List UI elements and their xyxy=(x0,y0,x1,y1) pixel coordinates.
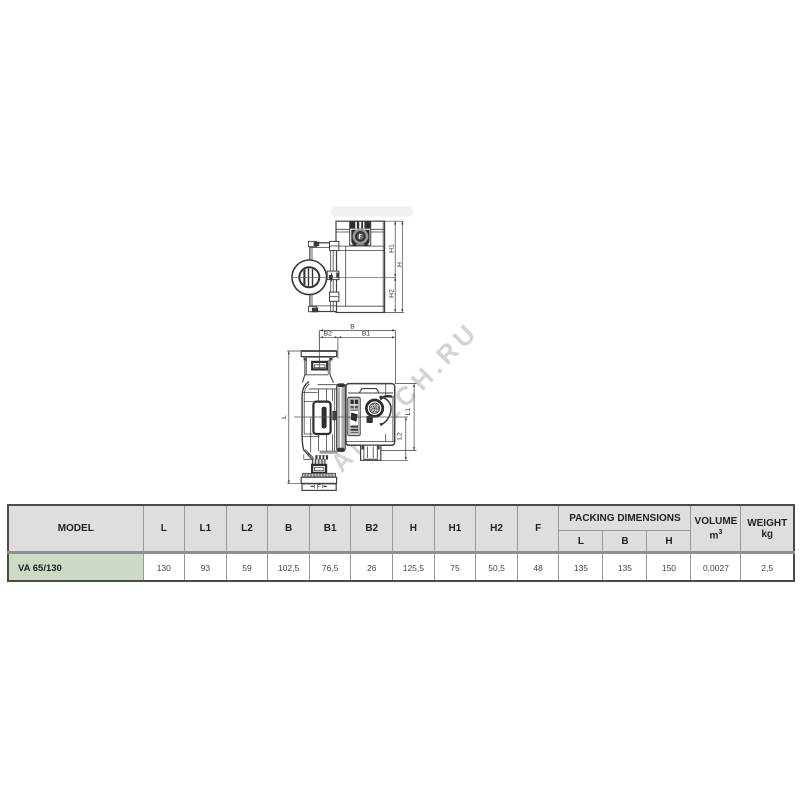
svg-text:SANTECH.RU: SANTECH.RU xyxy=(309,315,485,493)
svg-text:B1: B1 xyxy=(362,331,371,338)
svg-text:L2: L2 xyxy=(397,432,404,440)
svg-text:H1: H1 xyxy=(388,244,395,253)
svg-text:H2: H2 xyxy=(388,289,395,298)
svg-text:L: L xyxy=(281,415,288,419)
svg-text:B2: B2 xyxy=(324,331,333,338)
svg-text:L1: L1 xyxy=(405,408,412,416)
svg-text:H: H xyxy=(397,262,404,267)
svg-text:B: B xyxy=(350,324,355,331)
svg-text:F: F xyxy=(317,484,321,491)
